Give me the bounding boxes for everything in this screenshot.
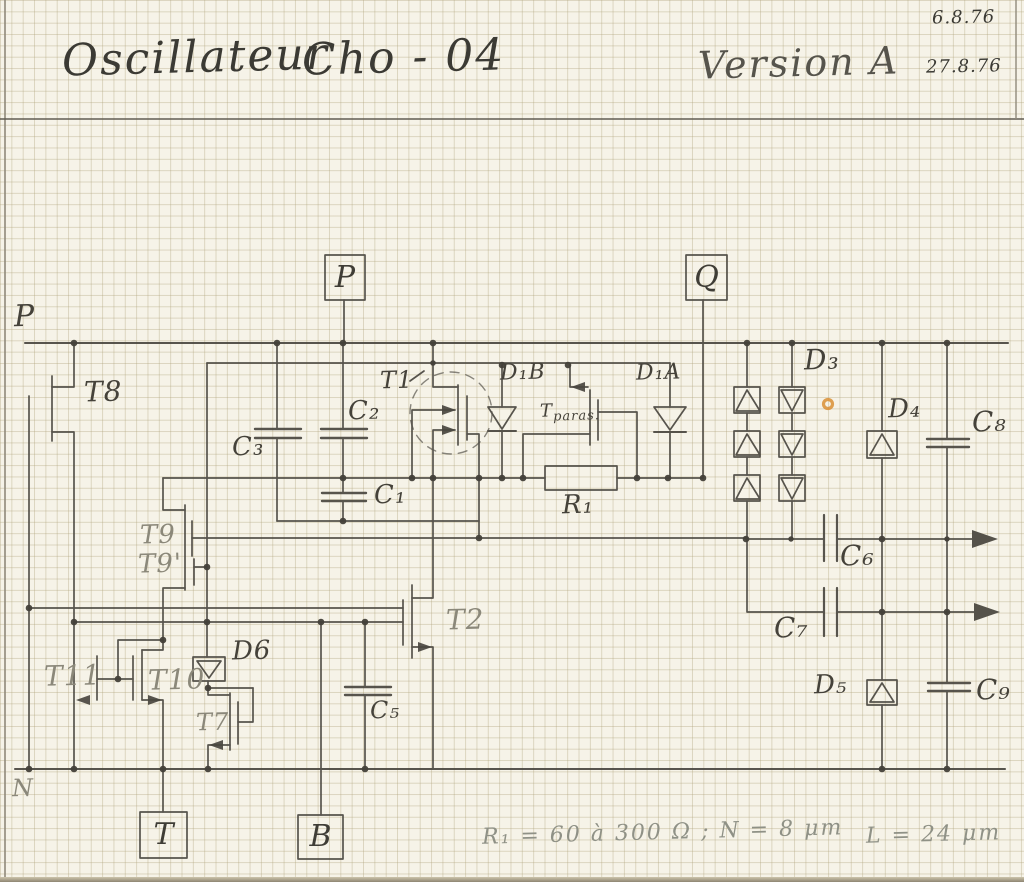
label-d1b: D₁B xyxy=(500,361,546,384)
schematic-page: Oscillateur Cho - 04 Version A 6.8.76 27… xyxy=(0,0,1024,882)
terminal-label-p: P xyxy=(325,255,365,300)
date-second: 27.8.76 xyxy=(926,57,1002,76)
label-t9: T9 xyxy=(140,522,177,549)
page-rules xyxy=(0,0,1024,882)
label-r1: R₁ xyxy=(562,492,595,519)
label-tparas-sub: paras. xyxy=(553,408,600,424)
capacitor-c8 xyxy=(927,343,969,683)
label-d3: D₃ xyxy=(804,346,840,375)
label-t7: T7 xyxy=(196,710,230,735)
label-c1: C₁ xyxy=(374,482,407,509)
transistor-t8 xyxy=(29,343,74,769)
label-d1a: D₁A xyxy=(636,361,682,384)
page-title-word2: Cho - 04 xyxy=(301,33,505,82)
date-first: 6.8.76 xyxy=(932,8,996,27)
label-t2: T2 xyxy=(446,606,485,635)
output-arrow-top xyxy=(972,530,998,548)
label-tparas: Tparas. xyxy=(540,401,600,424)
label-t1: T1 xyxy=(380,368,414,393)
page-title-word1: Oscillateur xyxy=(61,33,329,84)
diode-stack-d3-right xyxy=(779,343,805,539)
output-arrow-bottom xyxy=(974,603,1000,621)
label-t9p: T9' xyxy=(138,550,183,577)
label-c8: C₈ xyxy=(972,408,1007,437)
label-c9: C₉ xyxy=(976,676,1011,705)
label-d6: D6 xyxy=(232,637,272,664)
label-d4: D₄ xyxy=(888,396,922,423)
circuit-drawing xyxy=(0,0,1024,882)
terminal-label-t: T xyxy=(140,812,187,858)
label-c5: C₅ xyxy=(370,698,401,723)
label-t11: T11 xyxy=(44,661,102,690)
version-label: Version A xyxy=(698,41,900,84)
terminal-label-b: B xyxy=(298,815,343,859)
label-tparas-main: T xyxy=(540,400,554,421)
label-t10: T10 xyxy=(148,665,206,694)
label-c3: C₃ xyxy=(232,434,265,461)
rail-label-n: N xyxy=(12,776,35,801)
terminal-label-q: Q xyxy=(686,255,727,300)
label-t8: T8 xyxy=(84,378,123,407)
resistor-r1 xyxy=(545,466,617,490)
page-bottom-edge xyxy=(0,877,1024,882)
label-c7: C₇ xyxy=(774,614,809,643)
annotation-l-value: L = 24 μm xyxy=(866,822,1002,848)
label-d5: D₅ xyxy=(814,672,848,699)
orange-mark-icon xyxy=(824,400,833,409)
label-c6: C₆ xyxy=(840,542,875,571)
capacitor-c1 xyxy=(322,478,366,521)
diode-d5 xyxy=(867,680,897,769)
label-c2: C₂ xyxy=(348,398,381,425)
rail-label-p: P xyxy=(14,302,36,333)
capacitor-c9 xyxy=(928,683,970,769)
capacitor-c7 xyxy=(824,588,974,636)
